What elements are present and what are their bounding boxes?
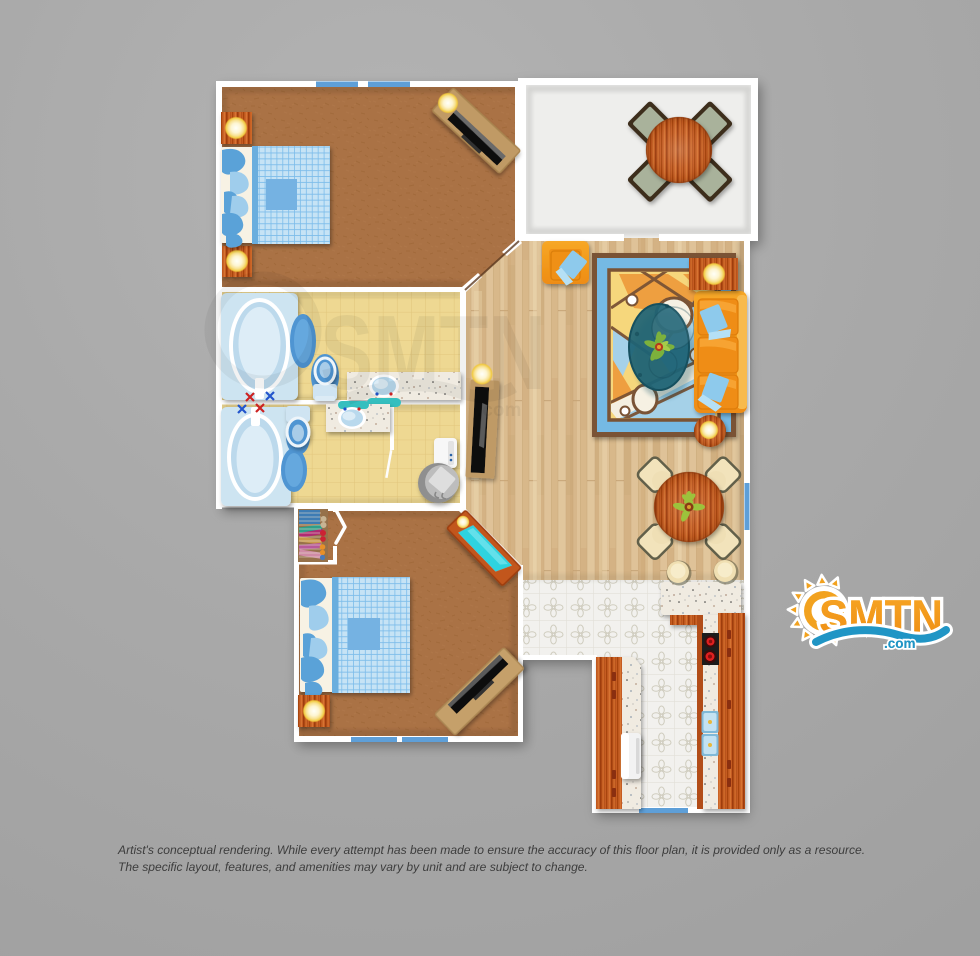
svg-text:.com: .com (884, 636, 916, 651)
svg-text:.com: .com (477, 400, 521, 421)
svg-text:The specific layout, features,: The specific layout, features, and ameni… (118, 860, 588, 874)
svg-text:Artist's conceptual rendering.: Artist's conceptual rendering. While eve… (117, 843, 865, 857)
